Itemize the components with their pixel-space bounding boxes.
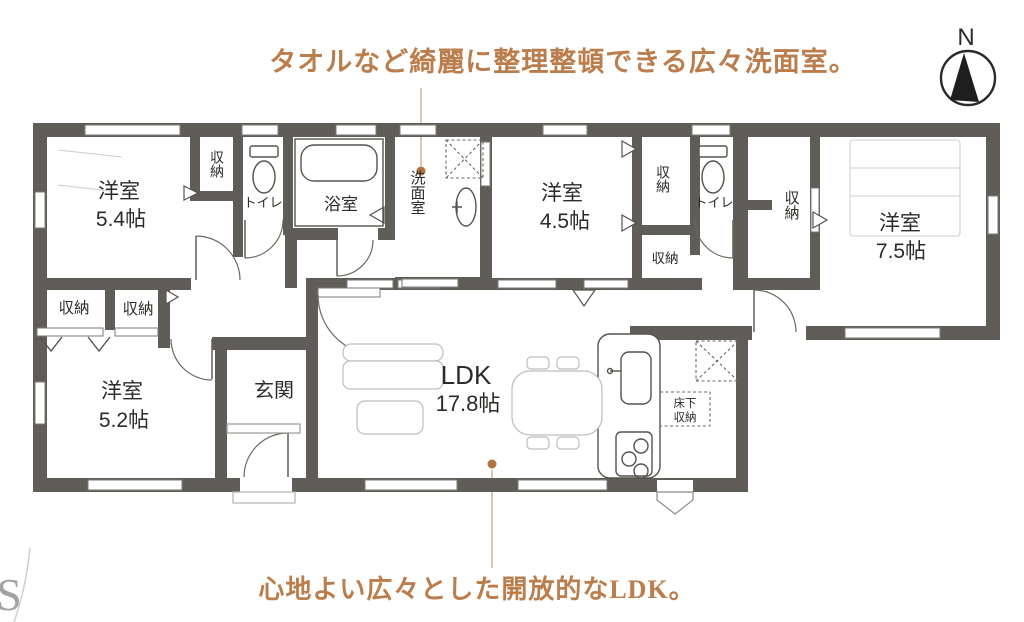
wall-segment <box>215 337 227 478</box>
chair <box>527 437 549 449</box>
room-label-underfloor-line2: 収納 <box>674 411 697 424</box>
room-label-closet: 収納 <box>783 190 800 221</box>
wall-segment <box>33 123 47 492</box>
wall-segment <box>233 137 243 257</box>
room-label-closet: 収納 <box>58 299 89 317</box>
window <box>35 192 45 228</box>
closet-track <box>115 328 158 336</box>
appliance-space-icon <box>696 341 738 381</box>
room-label-bedroom45-name: 洋室 <box>541 182 583 205</box>
window <box>400 125 436 135</box>
window <box>336 125 376 135</box>
appliance-space-x <box>696 341 738 381</box>
room-label-closet: 収納 <box>122 300 153 318</box>
toilet-bowl <box>702 161 724 193</box>
watermark-letter: S <box>0 569 22 620</box>
room-label-ldk-name: LDK <box>441 360 492 390</box>
room-label-ldk-size: 17.8帖 <box>436 391 501 416</box>
folding-door-icon <box>88 337 110 351</box>
window <box>845 328 940 338</box>
sink-icon <box>452 188 476 226</box>
room-label-bedroom75-name: 洋室 <box>879 212 921 235</box>
room-label-washroom: 洗面室 <box>409 170 426 215</box>
wall-segment <box>748 278 820 290</box>
room-label-closet: 収納 <box>652 251 679 266</box>
room-label-bedroom54-name: 洋室 <box>98 180 140 203</box>
entrance-porch <box>233 492 295 503</box>
room-label-underfloor-line1: 床下 <box>674 396 697 410</box>
wall-segment <box>632 225 700 235</box>
annotation-bottom: 心地よい広々とした開放的なLDK。 <box>258 574 695 604</box>
floor-plan-svg: タオルなど綺麗に整理整頓できる広々洗面室。 心地よい広々とした開放的なLDK。 … <box>0 0 1024 622</box>
sliding-door <box>498 280 556 288</box>
dining-table <box>512 371 602 435</box>
window <box>518 480 607 490</box>
closet-track <box>37 328 103 336</box>
walls <box>33 123 1000 492</box>
room-label-bath: 浴室 <box>324 195 358 214</box>
bed-lines <box>850 168 960 196</box>
genkan-step <box>227 424 300 433</box>
window <box>692 125 730 135</box>
room-label-bedroom52-size: 5.2帖 <box>99 409 149 432</box>
door-arc <box>695 220 733 258</box>
sliding-door <box>347 280 393 288</box>
door-marker <box>573 290 595 306</box>
window <box>365 480 457 490</box>
door-arc <box>754 290 796 332</box>
wall-segment <box>632 278 702 290</box>
window <box>35 382 45 424</box>
toilet-tank <box>250 146 278 157</box>
door-marker <box>370 207 384 223</box>
wall-segment <box>733 137 748 290</box>
door-marker <box>166 290 178 304</box>
room-label-toilet: トイレ <box>243 195 282 210</box>
sofa <box>343 344 443 361</box>
wall-segment <box>306 288 318 478</box>
floorplan-page: タオルなど綺麗に整理整頓できる広々洗面室。 心地よい広々とした開放的なLDK。 … <box>0 0 1024 622</box>
wall-segment <box>385 137 395 235</box>
room-label-toilet: トイレ <box>694 195 733 210</box>
room-label-bedroom75-size: 7.5帖 <box>876 240 926 263</box>
sliding-door <box>481 142 490 186</box>
toilet-icon <box>699 146 727 193</box>
door-opening <box>657 480 693 492</box>
room-label-bedroom52-name: 洋室 <box>101 380 143 403</box>
windows <box>35 125 998 492</box>
coffee-table <box>357 401 423 434</box>
annotation-top: タオルなど綺麗に整理整頓できる広々洗面室。 <box>269 46 856 77</box>
wall-segment <box>190 137 200 197</box>
chair <box>557 357 579 369</box>
door-leaf <box>318 288 380 297</box>
kitchen-sink <box>621 352 651 404</box>
wall-segment <box>293 228 338 240</box>
sofa-seat <box>343 361 443 389</box>
room-label-entrance: 玄関 <box>254 379 294 402</box>
room-label-bedroom45-size: 4.5帖 <box>540 210 590 233</box>
room-label-closet: 収納 <box>655 165 671 194</box>
door-opening <box>240 478 292 492</box>
chair <box>527 357 549 369</box>
leader-dot <box>488 460 497 469</box>
door-arc <box>245 220 283 258</box>
compass: N <box>941 24 995 105</box>
room-label-bedroom54-size: 5.4帖 <box>96 208 146 231</box>
window <box>988 196 998 234</box>
sliding-door <box>402 279 458 287</box>
sliding-door <box>584 280 628 288</box>
window <box>543 125 587 135</box>
washer-pan-icon <box>446 140 483 178</box>
back-door-step <box>657 492 693 514</box>
door-arc <box>244 433 288 477</box>
wall-segment <box>105 290 115 330</box>
washer-pan-x <box>446 140 483 178</box>
leader-line-bottom <box>488 460 497 569</box>
window <box>88 480 182 490</box>
chair <box>557 437 579 449</box>
compass-needle-icon <box>950 53 979 102</box>
compass-label: N <box>957 24 974 51</box>
room-label-closet: 収納 <box>209 150 225 179</box>
bathtub <box>301 145 377 181</box>
wall-segment <box>632 137 642 288</box>
door-arc <box>171 339 212 380</box>
toilet-bowl <box>253 161 275 193</box>
wall-segment <box>283 137 293 235</box>
toilet-icon <box>250 146 278 193</box>
kitchen-counter <box>598 334 660 478</box>
wall-segment <box>748 200 772 210</box>
door-arc <box>337 240 373 276</box>
window <box>85 125 180 135</box>
window <box>242 125 278 135</box>
toilet-tank <box>699 146 727 157</box>
